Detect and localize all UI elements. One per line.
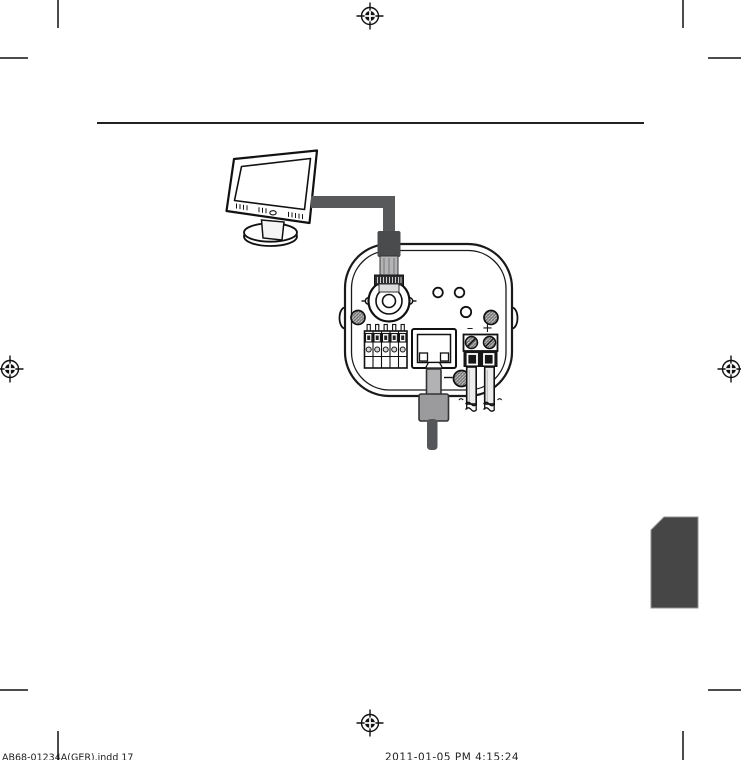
- manual-page: – +: [0, 0, 741, 760]
- network-plug-body: [419, 394, 449, 421]
- registration-mark-left: [0, 356, 24, 383]
- footer-left-text: AB68-01234A(GER).indd 17: [2, 753, 133, 760]
- network-cable: [427, 419, 438, 450]
- registration-mark-top: [357, 3, 384, 30]
- bnc-plug-collar: [379, 284, 399, 292]
- status-led-1: [433, 288, 443, 298]
- control-button: [461, 307, 471, 317]
- page-side-tab: [651, 517, 698, 608]
- ethernet-port: [412, 329, 456, 368]
- panel-screw-left: [351, 311, 365, 325]
- bnc-plug-boot: [378, 231, 401, 257]
- monitor-screen: [235, 159, 311, 210]
- monitor-stand-neck: [262, 220, 285, 240]
- footer-center-text: 2011-01-05 PM 4:15:24: [385, 752, 519, 760]
- monitor-illustration: [227, 151, 318, 247]
- video-cable: [311, 196, 395, 235]
- io-terminal-block: [365, 325, 408, 369]
- status-led-2: [455, 288, 465, 298]
- registration-mark-right: [718, 356, 741, 383]
- page-canvas: – +: [0, 0, 741, 760]
- power-terminal-block: [464, 335, 498, 368]
- registration-mark-bottom: [357, 710, 384, 737]
